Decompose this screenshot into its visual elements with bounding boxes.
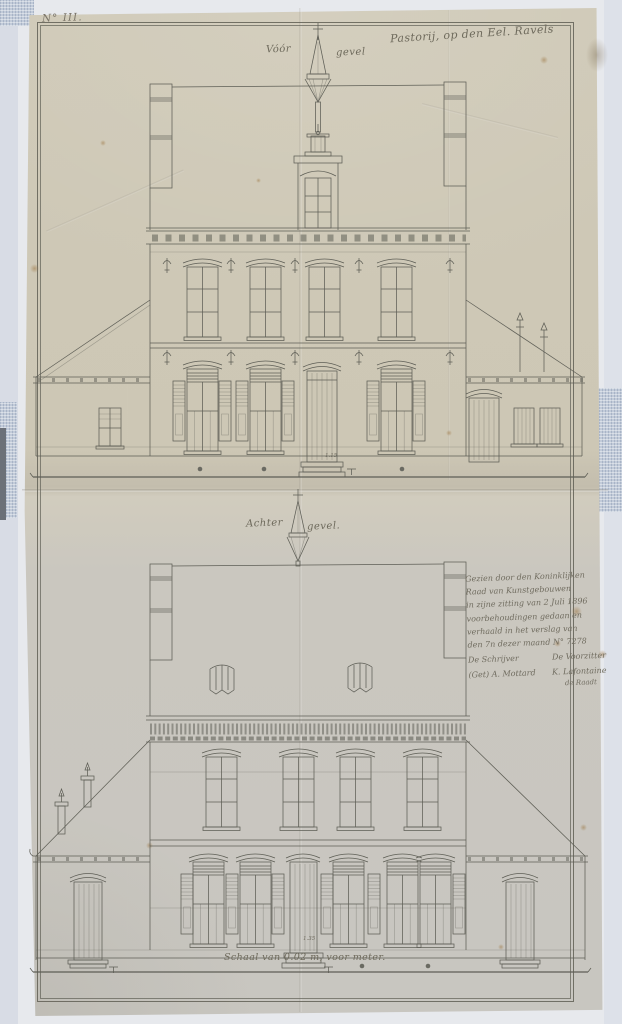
back-right-wing	[466, 740, 588, 968]
side-door	[500, 874, 540, 969]
roof-finial-poles	[516, 313, 548, 372]
datum-mark	[347, 469, 356, 475]
front-dormer	[294, 124, 342, 230]
front-spire-finial	[305, 23, 331, 132]
front-chimney-right	[444, 82, 466, 186]
side-door	[68, 874, 108, 969]
back-elevation-label-right: gevel.	[307, 520, 341, 532]
side-door	[466, 390, 502, 463]
basement-vent	[426, 964, 431, 969]
window	[189, 854, 228, 948]
roof-vent	[348, 663, 372, 692]
back-roof-ridge	[172, 564, 444, 566]
window	[305, 259, 344, 341]
front-right-wing	[466, 300, 585, 462]
basement-vent	[400, 467, 405, 472]
window	[377, 259, 416, 341]
window	[336, 749, 375, 831]
window	[96, 408, 124, 449]
shutter	[219, 381, 231, 441]
window	[236, 854, 275, 948]
front-elevation-label-left: Vóór	[266, 44, 291, 56]
front-roof-ridge	[172, 85, 444, 87]
approval-role-left: De Schrijver	[468, 652, 519, 667]
approval-signature-left: (Get) A. Mottard	[468, 667, 536, 683]
back-chimney-right	[444, 562, 466, 658]
elevation-drawings: 1.15	[0, 0, 622, 1024]
shutter	[236, 381, 248, 441]
back-spire-finial	[287, 489, 309, 566]
shutter	[173, 381, 185, 441]
window	[383, 854, 422, 948]
back-elevation-drawing: 1.35	[30, 489, 591, 973]
front-upper-windows-row	[183, 259, 416, 341]
window	[246, 361, 285, 455]
back-elevation-label-left: Achter	[246, 517, 283, 529]
front-elevation-label-right: gevel	[336, 46, 366, 58]
front-chimney-left	[150, 84, 172, 188]
basement-vent	[262, 467, 267, 472]
window	[537, 408, 563, 447]
shutter	[181, 874, 193, 934]
window	[511, 408, 537, 447]
front-left-wing	[33, 300, 150, 456]
shutter	[413, 381, 425, 441]
chimney-pipe	[81, 763, 94, 807]
scanned-sheet-background: 1.15	[0, 0, 622, 1024]
shutter	[321, 874, 333, 934]
basement-vent	[198, 467, 203, 472]
roof-vent	[210, 665, 234, 694]
gutter-hook	[30, 849, 33, 856]
window	[279, 749, 318, 831]
back-left-wing	[30, 740, 150, 968]
window	[183, 259, 222, 341]
approval-role-right: De Voorzitter	[552, 649, 606, 664]
shutter	[453, 874, 465, 934]
window	[377, 361, 416, 455]
back-entrance-door: 1.35	[282, 854, 325, 968]
shutter	[272, 874, 284, 934]
basement-vent	[360, 964, 365, 969]
shutter	[368, 874, 380, 934]
window	[416, 854, 455, 948]
front-entrance-door: 1.15	[299, 363, 345, 478]
front-cornice	[146, 228, 470, 244]
window	[403, 749, 442, 831]
back-chimney-left	[150, 564, 172, 660]
window	[183, 361, 222, 455]
plate-number: N° III.	[42, 11, 83, 24]
shutter	[282, 381, 294, 441]
back-upper-windows-row	[202, 749, 442, 831]
approval-signature-right: K. Lafontaine	[552, 664, 607, 679]
shutter	[226, 874, 238, 934]
window	[202, 749, 241, 831]
back-cornice	[146, 716, 470, 742]
front-elevation-drawing: 1.15	[30, 23, 588, 477]
back-door-dimension: 1.35	[303, 936, 316, 942]
approval-note: Gezien door den Koninklijken Raad van Ku…	[465, 567, 619, 691]
chimney-pipe	[55, 789, 68, 834]
window	[246, 259, 285, 341]
scale-note: Schaal van 0.02 m, voor meter.	[224, 952, 444, 963]
front-ground-windows-row	[173, 361, 425, 455]
window	[329, 854, 368, 948]
back-ground-windows-row	[181, 854, 465, 948]
shutter	[367, 381, 379, 441]
